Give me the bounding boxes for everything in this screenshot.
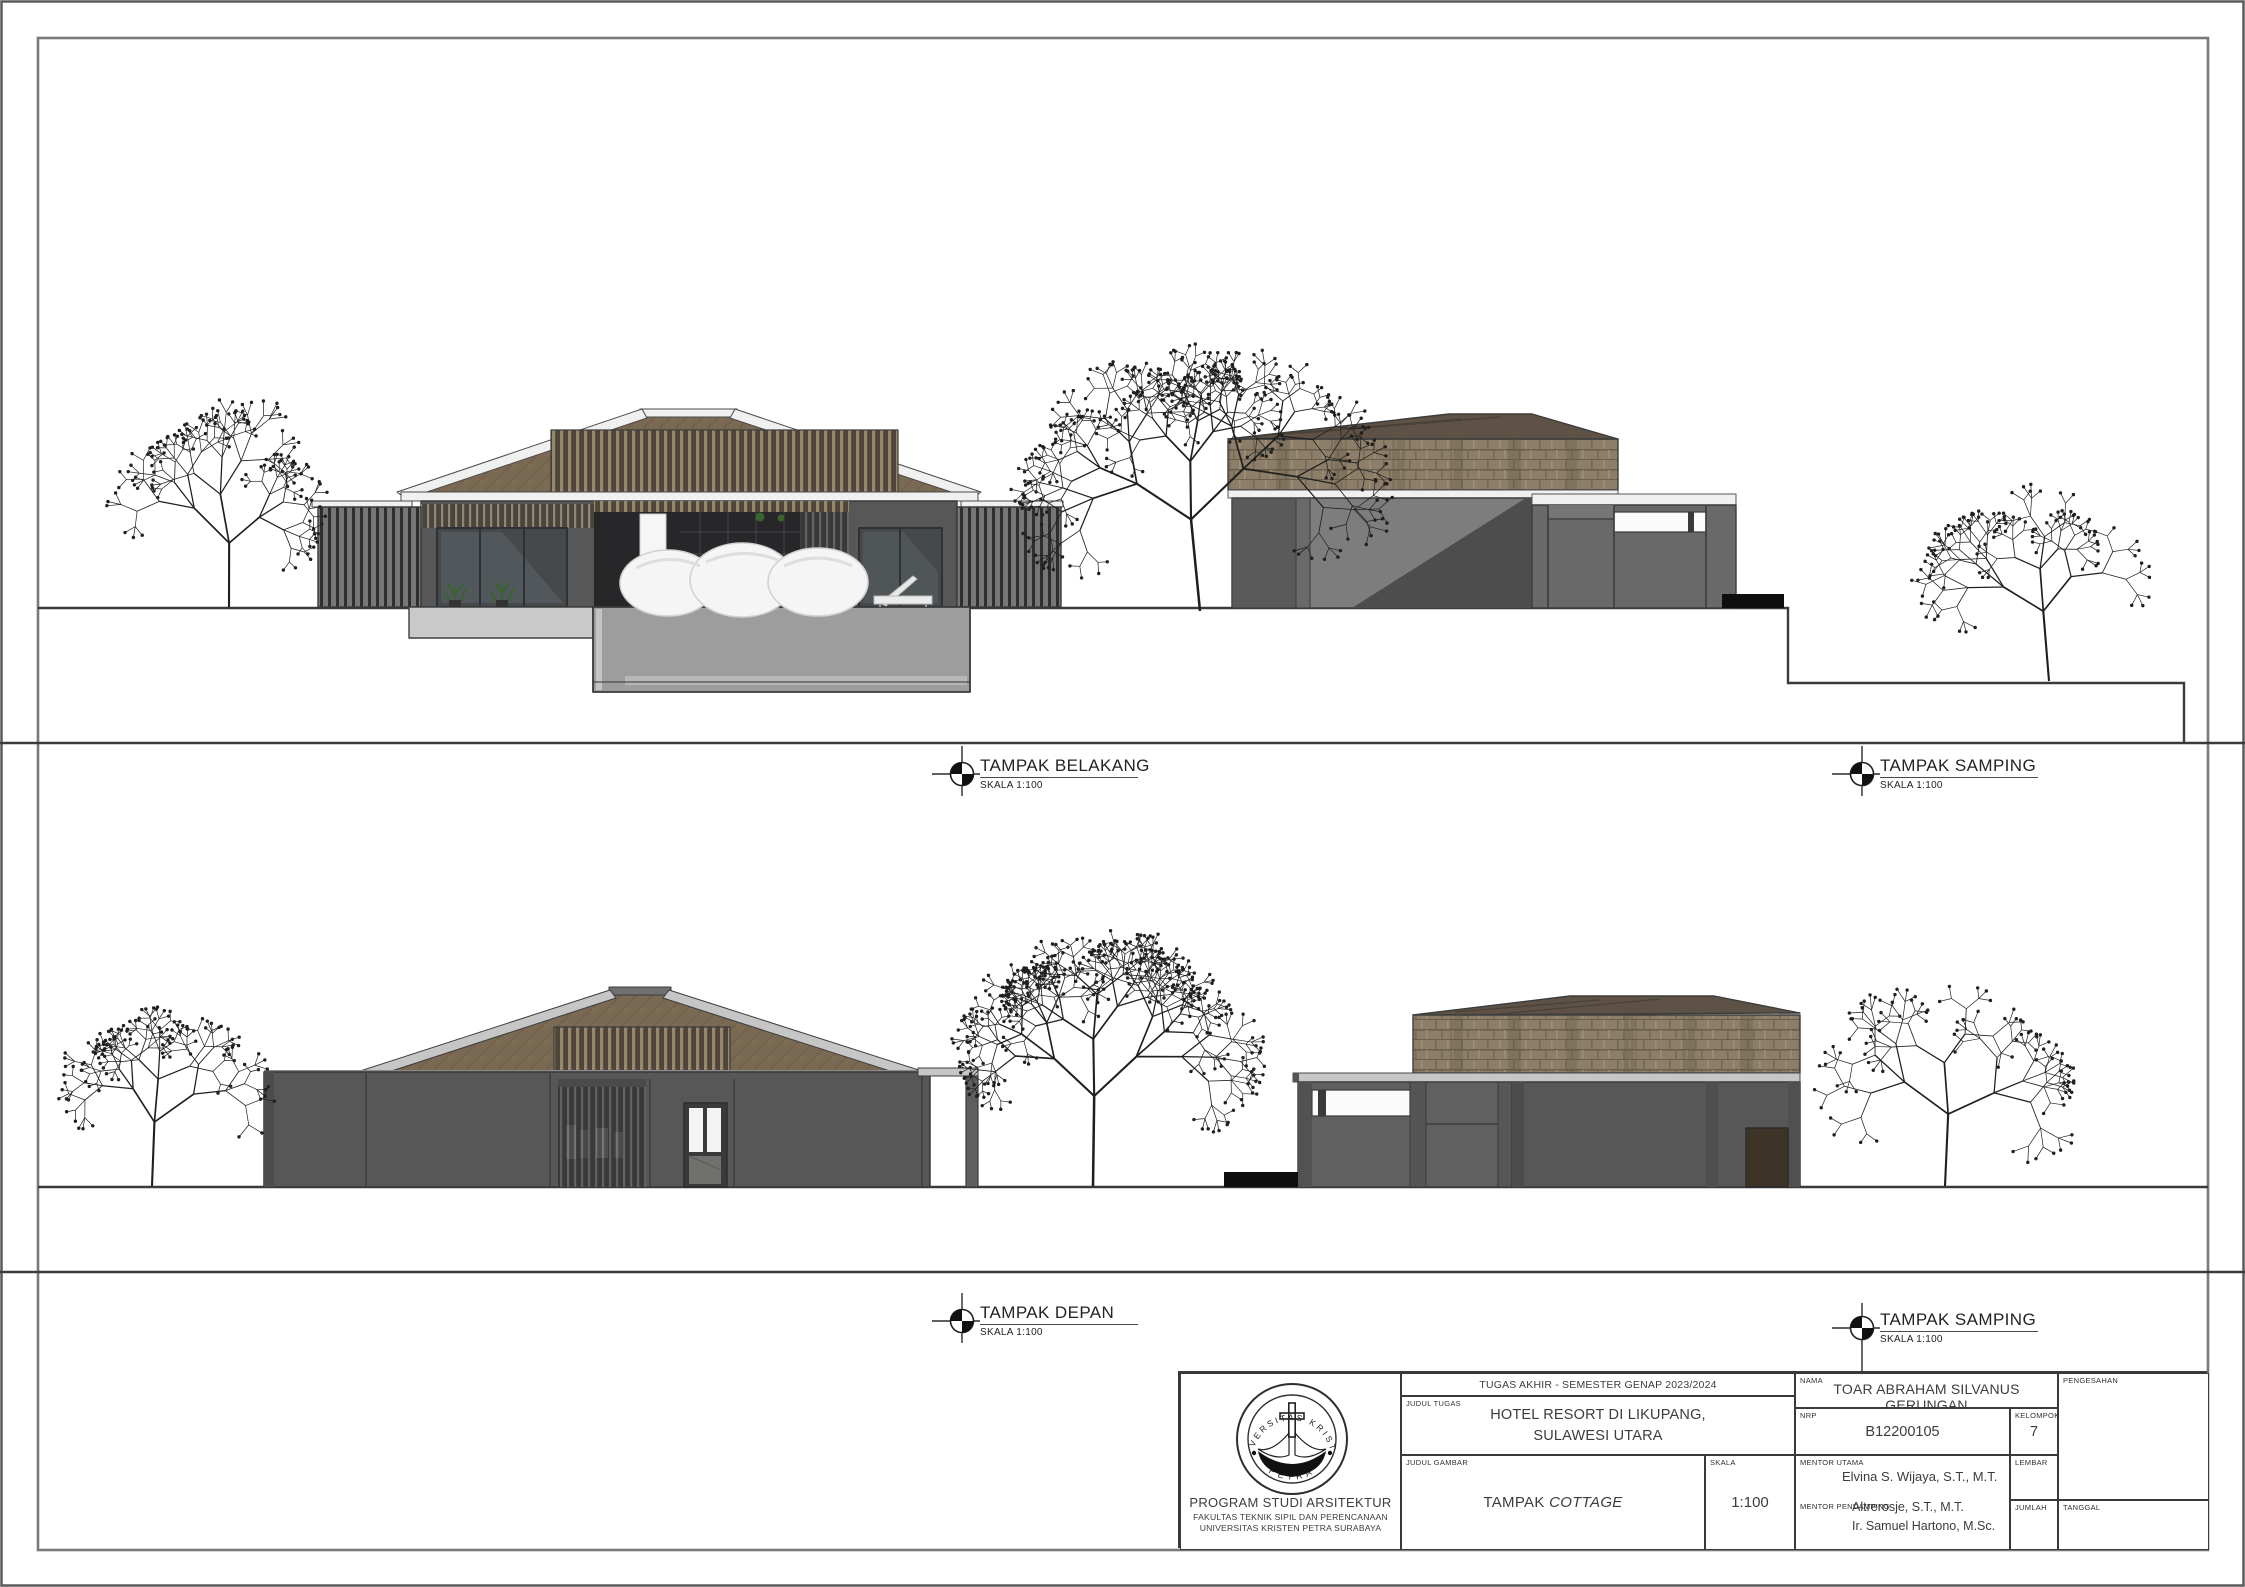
mentor-cell: MENTOR UTAMA Elvina S. Wijaya, S.T., M.T…: [1795, 1455, 2010, 1550]
skala-value: 1:100: [1706, 1456, 1794, 1549]
judul-gambar-cell: JUDUL GAMBAR TAMPAK COTTAGE: [1401, 1455, 1705, 1550]
elevation-scale: SKALA 1:100: [1880, 780, 2038, 791]
kelompok-label: KELOMPOK: [2015, 1411, 2060, 1420]
marker-side-1: [1832, 746, 1880, 796]
louver-wing-left: [318, 507, 421, 607]
terrace-slab: [409, 607, 593, 638]
nrp-label: NRP: [1800, 1411, 1817, 1420]
elevation-title: TAMPAK DEPAN: [980, 1303, 1138, 1323]
label-underline: [1880, 1331, 2038, 1332]
elevation-scale: SKALA 1:100: [1880, 1334, 2038, 1345]
side-door: [1746, 1128, 1788, 1187]
student-nrp: B12200105: [1796, 1409, 2009, 1454]
skala-label: SKALA: [1710, 1458, 1736, 1467]
program-name: PROGRAM STUDI ARSITEKTUR: [1181, 1495, 1400, 1510]
judul-gambar-label: JUDUL GAMBAR: [1406, 1458, 1468, 1467]
elevation-title: TAMPAK SAMPING: [1880, 756, 2038, 776]
drawing-title: TAMPAK COTTAGE: [1483, 1494, 1622, 1511]
marker-side-2: [1832, 1303, 1880, 1371]
course-title: TUGAS AKHIR - SEMESTER GENAP 2023/2024: [1402, 1374, 1794, 1395]
university-logo: UNIVERSITAS KRISTEN PETRA: [1181, 1380, 1402, 1498]
judul-tugas-cell: JUDUL TUGAS HOTEL RESORT DI LIKUPANG, SU…: [1401, 1396, 1795, 1455]
elevation-rear-cottage: [312, 409, 1063, 692]
nama-cell: NAMA TOAR ABRAHAM SILVANUS GERUNGAN: [1795, 1373, 2058, 1408]
lembar-cell: LEMBAR: [2010, 1455, 2058, 1500]
entry-step: [1722, 594, 1784, 608]
judul-tugas-label: JUDUL TUGAS: [1406, 1399, 1461, 1408]
elevation-drawings-canvas: [0, 0, 2245, 1587]
course-cell: TUGAS AKHIR - SEMESTER GENAP 2023/2024: [1401, 1373, 1795, 1396]
mentor-utama-value: Elvina S. Wijaya, S.T., M.T.: [1842, 1469, 2009, 1484]
entry-door: [684, 1103, 727, 1187]
pengesahan-cell: PENGESAHAN: [2058, 1373, 2209, 1500]
label-tampak-belakang: TAMPAK BELAKANG SKALA 1:100: [980, 756, 1150, 791]
marker-rear: [932, 746, 980, 796]
shelf-plant: [756, 513, 765, 522]
lounge-cushions: [620, 543, 868, 617]
elevation-scale: SKALA 1:100: [980, 1327, 1138, 1338]
mentor-pendamping-label: MENTOR PENDAMPING: [1800, 1502, 1890, 1511]
label-underline: [980, 1324, 1138, 1325]
mentor-pendamping-2: Ir. Samuel Hartono, M.Sc.: [1852, 1517, 2009, 1536]
marker-front: [932, 1293, 980, 1343]
clerestory-window: [1312, 1090, 1410, 1116]
jumlah-label: JUMLAH: [2015, 1503, 2047, 1512]
project-title-line1: HOTEL RESORT DI LIKUPANG,: [1490, 1405, 1706, 1425]
drawing-sheet: TAMPAK BELAKANG SKALA 1:100 TAMPAK SAMPI…: [0, 0, 2245, 1587]
project-title-line2: SULAWESI UTARA: [1490, 1426, 1706, 1446]
skala-cell: SKALA 1:100: [1705, 1455, 1795, 1550]
elevation-title: TAMPAK BELAKANG: [980, 756, 1150, 776]
faculty-name: FAKULTAS TEKNIK SIPIL DAN PERENCANAAN: [1181, 1512, 1400, 1524]
mentor-utama-label: MENTOR UTAMA: [1800, 1458, 1864, 1467]
label-underline: [980, 777, 1138, 778]
label-tampak-depan: TAMPAK DEPAN SKALA 1:100: [980, 1303, 1138, 1338]
title-block: UNIVERSITAS KRISTEN PETRA PROGRAM STUDI …: [1178, 1371, 2207, 1548]
elevation-side-1: [1228, 414, 1784, 608]
entry-step: [1224, 1172, 1298, 1187]
elevation-title: TAMPAK SAMPING: [1880, 1310, 2038, 1330]
pengesahan-label: PENGESAHAN: [2063, 1376, 2118, 1385]
university-name: UNIVERSITAS KRISTEN PETRA SURABAYA: [1181, 1523, 1400, 1535]
tanggal-label: TANGGAL: [2063, 1503, 2100, 1512]
kelompok-cell: KELOMPOK 7: [2010, 1408, 2058, 1455]
label-tampak-samping-2: TAMPAK SAMPING SKALA 1:100: [1880, 1310, 2038, 1345]
elevation-side-2: [1224, 996, 1800, 1187]
lembar-label: LEMBAR: [2015, 1458, 2048, 1467]
tanggal-cell: TANGGAL: [2058, 1500, 2209, 1550]
label-underline: [1880, 777, 2038, 778]
elevation-scale: SKALA 1:100: [980, 780, 1150, 791]
jumlah-cell: JUMLAH: [2010, 1500, 2058, 1550]
ground-line-top-band: [38, 608, 2184, 743]
label-tampak-samping-1: TAMPAK SAMPING SKALA 1:100: [1880, 756, 2038, 791]
nrp-cell: NRP B12200105: [1795, 1408, 2010, 1455]
shelf-plant: [778, 515, 785, 522]
nama-label: NAMA: [1800, 1376, 1823, 1385]
louver-screen: [558, 1079, 646, 1187]
outer-border: [2, 2, 2244, 1586]
elevation-front-cottage: [264, 987, 978, 1187]
institution-cell: UNIVERSITAS KRISTEN PETRA PROGRAM STUDI …: [1180, 1373, 1401, 1550]
